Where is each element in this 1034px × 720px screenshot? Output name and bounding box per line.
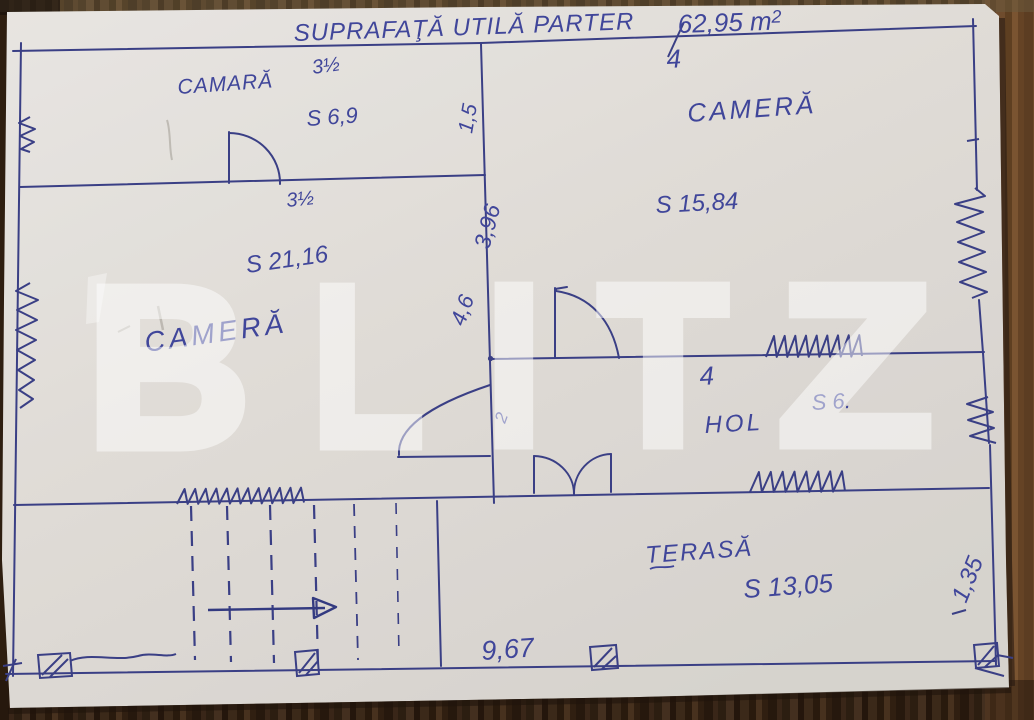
- svg-text:62,95 m2: 62,95 m2: [677, 5, 782, 39]
- svg-text:S 13,05: S 13,05: [742, 568, 834, 604]
- svg-text:T: T: [599, 239, 727, 493]
- svg-text:Z: Z: [778, 239, 933, 494]
- svg-text:S 15,84: S 15,84: [655, 188, 739, 219]
- svg-text:B: B: [87, 241, 250, 495]
- svg-text:3½: 3½: [285, 187, 315, 212]
- svg-text:3½: 3½: [311, 53, 342, 79]
- svg-text:4: 4: [666, 43, 682, 74]
- svg-text:S 6,9: S 6,9: [306, 102, 359, 131]
- svg-text:9,67: 9,67: [480, 632, 535, 666]
- svg-text:I: I: [486, 238, 542, 493]
- svg-text:L: L: [312, 238, 423, 493]
